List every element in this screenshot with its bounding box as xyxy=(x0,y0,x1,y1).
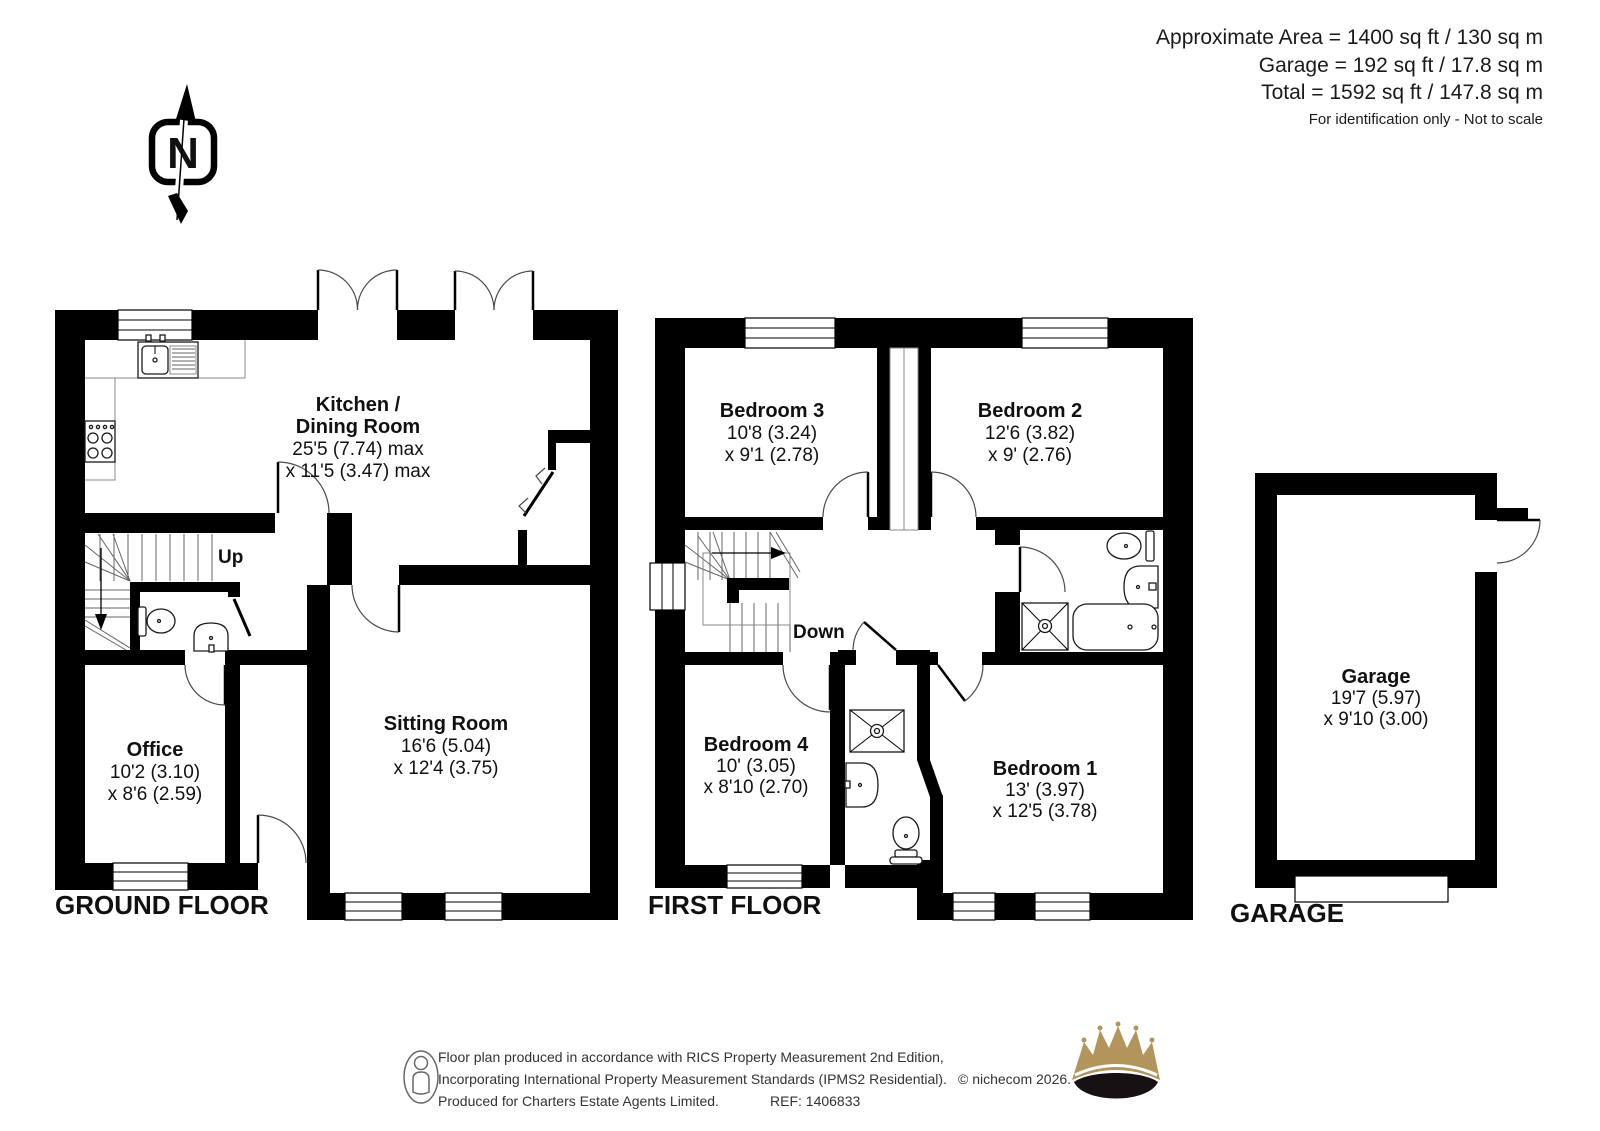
room-dimensions: 10'8 (3.24) xyxy=(727,423,817,444)
window xyxy=(745,318,835,348)
shower-fixture xyxy=(850,710,904,752)
basin-fixture xyxy=(845,763,878,807)
footer-ref: REF: 1406833 xyxy=(770,1093,860,1109)
room-name: Garage xyxy=(1342,666,1411,688)
footer-disclaimer: Floor plan produced in accordance with R… xyxy=(404,1022,1160,1110)
wardrobe-recess xyxy=(890,348,918,530)
bedroom1-door xyxy=(938,665,983,701)
room-dimensions: x 12'4 (3.75) xyxy=(393,758,498,779)
room-name: Office xyxy=(127,739,184,761)
room-office-label: Office 10'2 (3.10) x 8'6 (2.59) xyxy=(108,739,202,805)
wc-door xyxy=(234,599,250,636)
header-area-summary: Approximate Area = 1400 sq ft / 130 sq m… xyxy=(1156,26,1543,128)
person-icon xyxy=(404,1051,438,1103)
ensuite-door xyxy=(853,622,896,650)
floor-plan-svg: Approximate Area = 1400 sq ft / 130 sq m… xyxy=(0,0,1600,1131)
room-name: Bedroom 3 xyxy=(720,400,824,422)
room-name: Bedroom 1 xyxy=(993,758,1097,780)
room-dimensions: 19'7 (5.97) xyxy=(1331,688,1421,709)
bathroom-door xyxy=(1020,547,1065,592)
bath-fixture xyxy=(1073,604,1158,650)
garage-side-door xyxy=(1497,520,1540,563)
room-dimensions: x 9'10 (3.00) xyxy=(1323,709,1428,730)
room-garage-label: Garage 19'7 (5.97) x 9'10 (3.00) xyxy=(1323,666,1428,730)
room-name: Dining Room xyxy=(296,416,420,438)
office-door xyxy=(185,665,225,705)
toilet-fixture xyxy=(890,817,922,864)
room-dimensions: x 8'10 (2.70) xyxy=(703,777,808,798)
footer-line1: Floor plan produced in accordance with R… xyxy=(438,1049,944,1065)
room-dimensions: 10'2 (3.10) xyxy=(110,762,200,783)
window xyxy=(953,893,995,920)
window xyxy=(445,893,502,920)
window xyxy=(727,865,802,888)
first-floor-title: FIRST FLOOR xyxy=(648,890,822,920)
room-dimensions: 25'5 (7.74) max xyxy=(292,439,424,460)
room-dimensions: 10' (3.05) xyxy=(716,756,796,777)
shower-fixture xyxy=(1022,603,1068,650)
approximate-area-text: Approximate Area = 1400 sq ft / 130 sq m xyxy=(1156,26,1543,49)
footer-copyright: © nichecom 2026. xyxy=(958,1071,1071,1087)
window xyxy=(118,310,192,340)
garage-area-text: Garage = 192 sq ft / 17.8 sq m xyxy=(1259,54,1543,77)
room-bedroom2-label: Bedroom 2 12'6 (3.82) x 9' (2.76) xyxy=(978,400,1082,466)
room-name: Sitting Room xyxy=(384,713,508,735)
window xyxy=(113,863,188,890)
room-sitting-label: Sitting Room 16'6 (5.04) x 12'4 (3.75) xyxy=(384,713,508,779)
window xyxy=(1022,318,1108,348)
identification-note-text: For identification only - Not to scale xyxy=(1309,111,1543,128)
bedroom3-door xyxy=(823,472,868,517)
room-dimensions: x 9'1 (2.78) xyxy=(725,445,819,466)
room-bedroom3-label: Bedroom 3 10'8 (3.24) x 9'1 (2.78) xyxy=(720,400,824,466)
stairs-down-label: Down xyxy=(793,622,845,643)
footer-line3: Produced for Charters Estate Agents Limi… xyxy=(438,1093,719,1109)
basin-fixture xyxy=(1124,566,1158,608)
garage-title: GARAGE xyxy=(1230,898,1344,928)
room-dimensions: 16'6 (5.04) xyxy=(401,736,491,757)
stairs-up-label: Up xyxy=(218,547,243,568)
room-dimensions: x 8'6 (2.59) xyxy=(108,784,202,805)
crown-logo-icon xyxy=(1072,1022,1160,1099)
bedroom4-door xyxy=(783,665,830,712)
front-door xyxy=(519,468,553,516)
window xyxy=(345,893,402,920)
garage-plan: Garage 19'7 (5.97) x 9'10 (3.00) GARAGE xyxy=(1230,473,1540,928)
french-doors xyxy=(318,270,533,310)
floorplan-page: Approximate Area = 1400 sq ft / 130 sq m… xyxy=(0,0,1600,1131)
room-kitchen-label: Kitchen / Dining Room 25'5 (7.74) max x … xyxy=(286,394,431,482)
stove-hob xyxy=(85,421,115,462)
bedroom2-door xyxy=(931,472,976,517)
total-area-text: Total = 1592 sq ft / 147.8 sq m xyxy=(1261,81,1543,104)
footer-line2: Incorporating International Property Mea… xyxy=(438,1071,947,1087)
ground-floor-plan: Up xyxy=(55,270,618,920)
room-name: Kitchen / xyxy=(316,394,401,416)
room-bedroom4-label: Bedroom 4 10' (3.05) x 8'10 (2.70) xyxy=(703,734,809,798)
ground-floor-title: GROUND FLOOR xyxy=(55,890,269,920)
window xyxy=(1035,893,1090,920)
kitchen-sink xyxy=(138,335,198,378)
toilet-fixture xyxy=(1107,531,1154,561)
basin-fixture xyxy=(194,623,228,652)
room-name: Bedroom 4 xyxy=(704,734,809,756)
north-compass-icon: N xyxy=(152,84,214,224)
window xyxy=(650,563,685,610)
room-dimensions: x 12'5 (3.78) xyxy=(992,801,1097,822)
room-dimensions: 13' (3.97) xyxy=(1005,780,1085,801)
room-dimensions: 12'6 (3.82) xyxy=(985,423,1075,444)
room-bedroom1-label: Bedroom 1 13' (3.97) x 12'5 (3.78) xyxy=(992,758,1097,822)
first-floor-plan: Down xyxy=(648,318,1193,920)
sitting-room-door xyxy=(352,585,399,632)
back-door xyxy=(258,815,306,863)
room-dimensions: x 11'5 (3.47) max xyxy=(286,461,431,482)
toilet-fixture xyxy=(138,607,175,636)
room-name: Bedroom 2 xyxy=(978,400,1082,422)
room-dimensions: x 9' (2.76) xyxy=(988,445,1072,466)
staircase-first: Down xyxy=(685,532,845,652)
